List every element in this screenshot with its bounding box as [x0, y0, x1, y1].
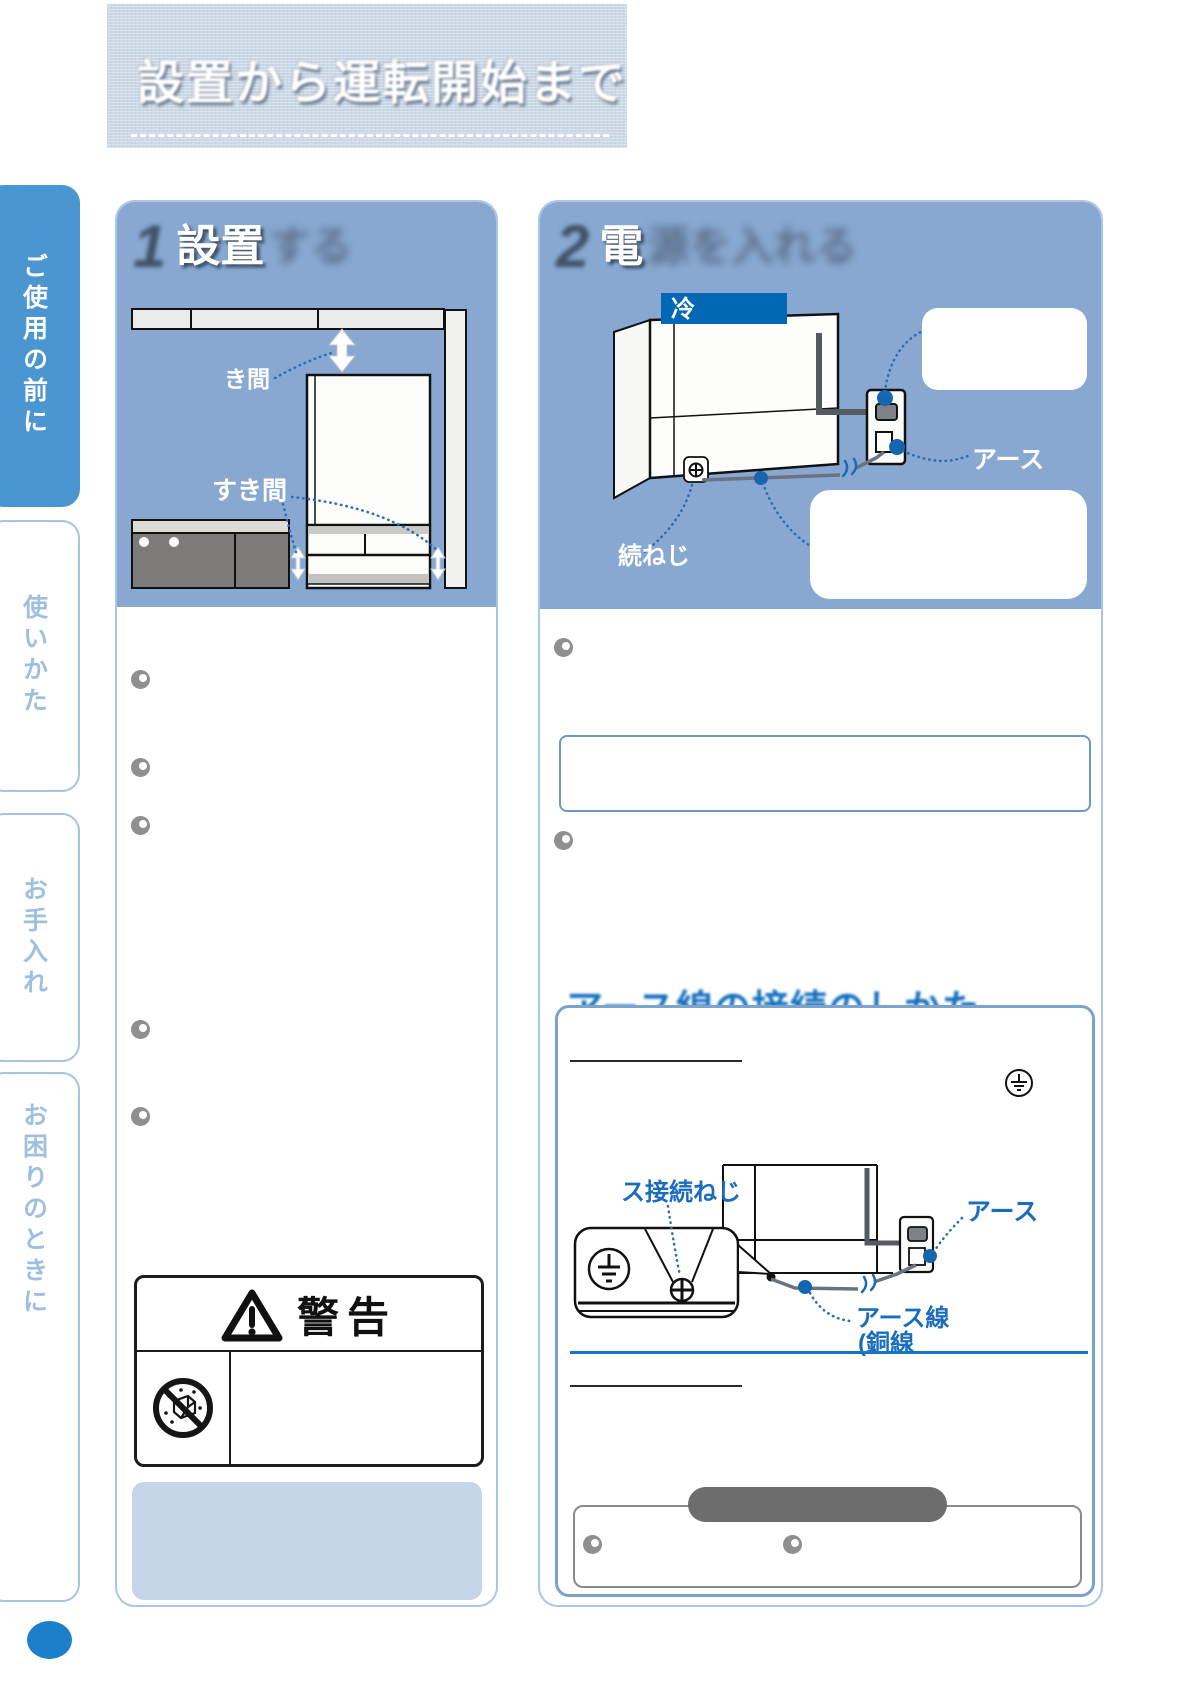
warning-box: 警告 [134, 1275, 484, 1467]
power-cord [867, 1168, 903, 1243]
bullet-marker [131, 758, 150, 777]
bullet-marker [131, 1020, 150, 1039]
note-outline-box [559, 735, 1091, 812]
screw-label: 続ねじ [618, 542, 690, 570]
earth-wire [771, 1279, 858, 1289]
earth-wire-label: アース線 [856, 1304, 949, 1332]
earth-label: アース [972, 446, 1044, 474]
no-water-icon [150, 1375, 216, 1441]
sidebar-tab-label: ご使用の前に [21, 253, 46, 439]
subheading-underline [570, 1385, 742, 1387]
bullet-marker [131, 1107, 150, 1126]
right-gap-arrow-icon [431, 547, 445, 580]
power-connection-diagram: 冷 [540, 202, 1103, 609]
left-gap-arrow-icon [291, 547, 305, 580]
subheading-underline [570, 1060, 742, 1062]
step1-panel: 1設置する [115, 200, 498, 1607]
earth-wiring-diagram: ス接続ねじ アース アース線 (銅線 [558, 1148, 1098, 1498]
wire-break-icon [843, 459, 856, 476]
warning-text-cell [231, 1352, 481, 1464]
gray-header-pill [688, 1487, 947, 1522]
step2-panel: 2電源を入れる 冷 [538, 200, 1103, 1607]
earth-connection-box: ス接続ねじ アース アース線 (銅線 [555, 1005, 1095, 1597]
bullet-marker [554, 831, 573, 850]
bullet-marker [554, 638, 573, 657]
earth-label: アース [966, 1198, 1038, 1226]
screw-label: ス接続ねじ [621, 1178, 741, 1206]
warning-header: 警告 [137, 1278, 481, 1352]
gap-side-label: すき間 [212, 477, 287, 505]
callout-box-bottom [810, 490, 1087, 599]
callout-box-top [922, 308, 1087, 390]
earth-wire [702, 475, 840, 480]
earth-symbol-icon [1002, 1066, 1036, 1100]
page-title: 設置から運転開始まで [137, 44, 627, 113]
callout-dot [889, 439, 905, 455]
sidebar-tab-care: お手入れ [0, 813, 80, 1062]
warning-title: 警告 [297, 1284, 397, 1345]
vertical-gap-arrow-icon [329, 329, 355, 372]
wall-outlet [900, 1217, 933, 1272]
gap-top-label: き間 [224, 366, 270, 392]
earth-symbol-icon [589, 1249, 629, 1289]
sidebar-tab-label: お困りのときに [21, 1102, 46, 1319]
bullet-marker [131, 816, 150, 835]
warning-icon-cell [137, 1352, 231, 1464]
refrigerator-front [307, 375, 430, 588]
refrigerator-back [614, 314, 838, 498]
callout-dot [754, 471, 768, 485]
note-highlight-box [132, 1482, 482, 1600]
page-banner: 設置から運転開始まで [107, 4, 627, 148]
page-number-badge [27, 1621, 72, 1659]
sidebar-tab-trouble: お困りのときに [0, 1072, 80, 1602]
installation-clearance-diagram: き間 すき間 [117, 202, 498, 607]
kitchen-counter [132, 520, 289, 588]
sidebar-tab-before-use: ご使用の前に [0, 185, 80, 507]
banner-dashed-line [131, 134, 609, 137]
ceiling-cabinet [132, 309, 444, 329]
blue-divider [570, 1351, 1088, 1354]
warning-triangle-icon [221, 1286, 283, 1343]
screw-icon [671, 1279, 693, 1301]
callout-dot [923, 1249, 937, 1263]
bullet-marker [131, 670, 150, 689]
fridge-label: 冷 [671, 295, 695, 323]
sidebar-tab-label: お手入れ [21, 876, 46, 1000]
wire-break-icon [862, 1275, 875, 1292]
wall-strip [445, 310, 466, 588]
bullet-marker [583, 1535, 602, 1554]
sidebar-tab-how-to-use: 使いかた [0, 520, 80, 792]
sidebar-tab-label: 使いかた [21, 594, 46, 718]
manual-page: 設置から運転開始まで ご使用の前に 使いかた お手入れ お困りのときに 1設置す… [0, 0, 1191, 1684]
bullet-marker [783, 1535, 802, 1554]
magnified-base-callout [575, 1228, 771, 1317]
